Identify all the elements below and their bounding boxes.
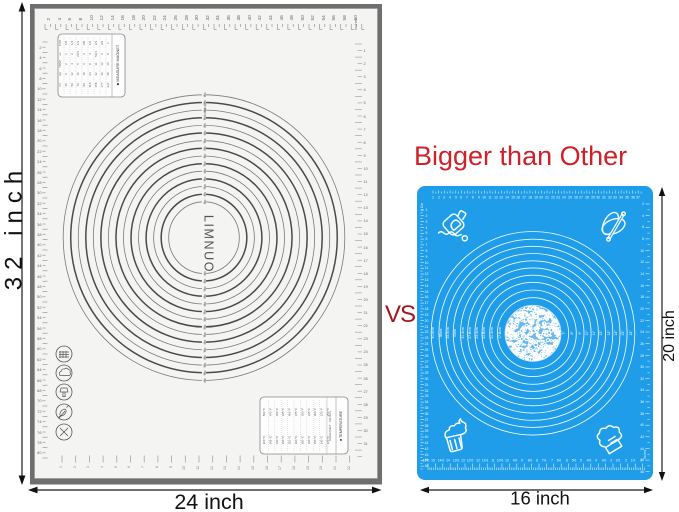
svg-text:TBSP: TBSP xyxy=(58,60,62,68)
svg-text:19: 19 xyxy=(364,285,368,289)
svg-text:15: 15 xyxy=(251,466,255,470)
svg-text:1½: 1½ xyxy=(631,459,636,463)
svg-text:12: 12 xyxy=(494,196,498,200)
svg-text:18: 18 xyxy=(640,295,644,299)
svg-text:20: 20 xyxy=(364,298,368,302)
svg-text:3Bcm: 3Bcm xyxy=(439,328,443,337)
svg-text:2: 2 xyxy=(364,62,366,66)
svg-text:9: 9 xyxy=(478,196,480,200)
svg-text:5: 5 xyxy=(580,459,582,463)
svg-text:59: 59 xyxy=(70,83,74,87)
svg-text:46: 46 xyxy=(279,15,285,21)
svg-text:9: 9 xyxy=(364,154,366,158)
svg-text:42: 42 xyxy=(37,253,41,258)
svg-text:34: 34 xyxy=(619,196,623,200)
svg-text:32: 32 xyxy=(608,196,612,200)
svg-text:22.Bcm: 22.Bcm xyxy=(482,327,486,339)
svg-text:22: 22 xyxy=(425,330,429,334)
svg-text:10: 10 xyxy=(182,466,186,470)
svg-text:25: 25 xyxy=(568,196,572,200)
svg-text:11: 11 xyxy=(488,196,492,200)
svg-text:13: 13 xyxy=(461,459,465,463)
svg-text:6: 6 xyxy=(642,225,644,229)
svg-text:2: 2 xyxy=(426,214,428,218)
svg-text:● Cm: ● Cm xyxy=(420,203,424,211)
svg-text:11: 11 xyxy=(364,180,368,184)
svg-text:14: 14 xyxy=(425,284,429,288)
svg-text:260 °C: 260 °C xyxy=(262,436,266,445)
svg-text:10": 10" xyxy=(585,330,589,336)
svg-text:20: 20 xyxy=(425,319,429,323)
svg-text:8: 8 xyxy=(78,18,84,21)
svg-text:8: 8 xyxy=(642,237,644,241)
svg-text:Inches: Inches xyxy=(353,18,358,30)
svg-text:31: 31 xyxy=(602,196,606,200)
svg-text:30: 30 xyxy=(64,83,68,87)
svg-text:12: 12 xyxy=(425,272,429,276)
svg-text:15: 15 xyxy=(511,196,515,200)
svg-text:24: 24 xyxy=(364,350,368,354)
svg-text:13: 13 xyxy=(364,206,368,210)
svg-text:58: 58 xyxy=(37,336,41,341)
svg-text:34: 34 xyxy=(640,388,644,392)
svg-text:56: 56 xyxy=(331,15,337,21)
svg-text:20.3cm: 20.3cm xyxy=(490,327,494,338)
svg-text:79: 79 xyxy=(76,83,80,87)
svg-text:31: 31 xyxy=(364,442,368,446)
svg-text:13: 13 xyxy=(223,466,227,470)
svg-text:10: 10 xyxy=(89,15,95,21)
svg-text:66: 66 xyxy=(37,378,41,383)
svg-text:15": 15" xyxy=(621,330,625,336)
svg-text:30: 30 xyxy=(194,15,200,21)
svg-text:12: 12 xyxy=(364,193,368,197)
svg-text:24: 24 xyxy=(88,72,92,76)
svg-text:40.6cm: 40.6cm xyxy=(431,327,435,338)
svg-text:17: 17 xyxy=(278,466,282,470)
svg-text:14: 14 xyxy=(110,15,116,21)
svg-text:46: 46 xyxy=(37,274,41,279)
svg-text:4: 4 xyxy=(364,88,366,92)
svg-text:ml: ml xyxy=(58,83,62,86)
svg-text:38: 38 xyxy=(640,412,644,416)
svg-text:20: 20 xyxy=(319,466,323,470)
svg-text:28: 28 xyxy=(640,354,644,358)
svg-text:2: 2 xyxy=(438,196,440,200)
svg-text:32: 32 xyxy=(94,72,98,76)
svg-text:8: 8 xyxy=(426,249,428,253)
svg-text:250 °F: 250 °F xyxy=(326,408,330,417)
svg-text:7: 7 xyxy=(466,196,468,200)
svg-text:12½: 12½ xyxy=(467,459,474,463)
svg-text:140 °C: 140 °C xyxy=(320,436,324,445)
svg-text:425 °F: 425 °F xyxy=(281,408,285,417)
svg-text:42: 42 xyxy=(257,15,263,21)
svg-text:19: 19 xyxy=(425,313,429,317)
svg-text:14: 14 xyxy=(640,272,644,276)
svg-text:8: 8 xyxy=(536,459,538,463)
svg-text:16: 16 xyxy=(265,466,269,470)
svg-text:26: 26 xyxy=(364,377,368,381)
svg-text:12: 12 xyxy=(476,459,480,463)
svg-text:52: 52 xyxy=(37,305,41,310)
svg-text:177: 177 xyxy=(100,82,104,87)
svg-text:16: 16 xyxy=(120,15,126,21)
svg-text:27: 27 xyxy=(364,390,368,394)
svg-text:25: 25 xyxy=(364,363,368,367)
svg-text:12: 12 xyxy=(100,62,104,66)
svg-text:12: 12 xyxy=(99,15,105,21)
svg-text:21: 21 xyxy=(333,466,337,470)
svg-text:30: 30 xyxy=(364,429,368,433)
svg-text:6: 6 xyxy=(127,466,131,468)
svg-text:43: 43 xyxy=(425,453,429,457)
svg-text:2/3: 2/3 xyxy=(94,41,98,46)
svg-text:1/2: 1/2 xyxy=(88,41,92,46)
svg-text:12: 12 xyxy=(210,466,214,470)
svg-text:28: 28 xyxy=(184,15,190,21)
svg-text:50: 50 xyxy=(300,15,306,21)
svg-text:22: 22 xyxy=(37,149,41,154)
svg-text:12": 12" xyxy=(599,330,603,336)
svg-text:1: 1 xyxy=(426,208,428,212)
svg-text:33: 33 xyxy=(425,394,429,398)
svg-text:3½: 3½ xyxy=(602,459,607,463)
svg-text:237: 237 xyxy=(106,82,110,87)
svg-text:10½: 10½ xyxy=(497,459,504,463)
svg-text:37: 37 xyxy=(425,418,429,422)
svg-text:350 °F: 350 °F xyxy=(300,408,304,417)
svg-text:2: 2 xyxy=(73,466,77,468)
svg-text:20 inch: 20 inch xyxy=(661,310,678,362)
svg-text:21: 21 xyxy=(545,196,549,200)
svg-text:24: 24 xyxy=(562,196,566,200)
svg-text:22: 22 xyxy=(640,319,644,323)
svg-text:17.Bcm: 17.Bcm xyxy=(498,327,502,339)
svg-text:16: 16 xyxy=(106,62,110,66)
svg-text:16: 16 xyxy=(640,284,644,288)
svg-text:30.4cm: 30.4cm xyxy=(461,327,465,338)
svg-text:29: 29 xyxy=(425,371,429,375)
svg-text:8: 8 xyxy=(155,466,159,468)
svg-text:42: 42 xyxy=(425,447,429,451)
svg-text:6: 6 xyxy=(460,196,462,200)
svg-text:16: 16 xyxy=(76,72,80,76)
svg-text:11: 11 xyxy=(425,266,429,270)
svg-text:33cm: 33cm xyxy=(453,329,457,337)
svg-text:48: 48 xyxy=(640,470,644,474)
svg-text:89: 89 xyxy=(82,83,86,87)
svg-text:13": 13" xyxy=(607,330,611,336)
svg-text:36: 36 xyxy=(37,222,41,227)
svg-text:3/8: 3/8 xyxy=(82,41,86,46)
svg-text:325 °F: 325 °F xyxy=(307,408,311,417)
svg-text:118: 118 xyxy=(88,82,92,87)
svg-text:23: 23 xyxy=(425,336,429,340)
svg-text:8: 8 xyxy=(472,196,474,200)
svg-text:30: 30 xyxy=(425,377,429,381)
svg-text:41: 41 xyxy=(425,441,429,445)
svg-text:15: 15 xyxy=(364,232,368,236)
svg-text:500 °F: 500 °F xyxy=(262,408,266,417)
svg-text:14: 14 xyxy=(364,219,368,223)
svg-text:8½: 8½ xyxy=(528,459,533,463)
svg-text:16: 16 xyxy=(425,295,429,299)
svg-text:tsp: tsp xyxy=(58,72,62,76)
svg-text:56: 56 xyxy=(37,326,41,331)
svg-text:26: 26 xyxy=(173,15,179,21)
svg-text:Bigger than Other: Bigger than Other xyxy=(414,141,627,171)
svg-text:23: 23 xyxy=(364,337,368,341)
svg-text:158: 158 xyxy=(94,82,98,87)
svg-text:34: 34 xyxy=(215,15,221,21)
svg-text:4: 4 xyxy=(449,196,451,200)
svg-text:48: 48 xyxy=(37,284,41,289)
svg-text:Inches: Inches xyxy=(643,449,647,459)
svg-text:14": 14" xyxy=(614,330,618,336)
svg-text:18: 18 xyxy=(292,466,296,470)
svg-text:15: 15 xyxy=(431,459,435,463)
svg-text:24 inch: 24 inch xyxy=(174,490,243,512)
svg-text:1/4: 1/4 xyxy=(70,41,74,46)
svg-text:14½: 14½ xyxy=(438,459,445,463)
svg-text:58: 58 xyxy=(342,15,348,21)
svg-text:22: 22 xyxy=(364,324,368,328)
svg-text:38: 38 xyxy=(37,232,41,237)
svg-text:1/3: 1/3 xyxy=(76,41,80,46)
svg-text:12: 12 xyxy=(70,72,74,76)
svg-text:oz: oz xyxy=(58,52,62,56)
svg-text:28: 28 xyxy=(585,196,589,200)
svg-text:■ TEMPERATURE: ■ TEMPERATURE xyxy=(339,410,343,441)
svg-text:400 °F: 400 °F xyxy=(288,408,292,417)
svg-text:3: 3 xyxy=(426,220,428,224)
svg-text:4: 4 xyxy=(426,226,428,230)
svg-text:38: 38 xyxy=(236,15,242,21)
svg-text:10: 10 xyxy=(640,249,644,253)
svg-text:VS: VS xyxy=(385,301,415,328)
svg-text:9: 9 xyxy=(521,459,523,463)
svg-text:51/3: 51/3 xyxy=(94,51,98,57)
svg-text:18: 18 xyxy=(131,15,137,21)
svg-text:5: 5 xyxy=(364,101,366,105)
svg-text:13½: 13½ xyxy=(453,459,460,463)
svg-text:2: 2 xyxy=(642,202,644,206)
svg-text:28: 28 xyxy=(425,365,429,369)
svg-text:76: 76 xyxy=(37,430,41,435)
svg-text:26: 26 xyxy=(37,170,41,175)
svg-text:2: 2 xyxy=(625,459,627,463)
svg-text:18: 18 xyxy=(82,72,86,76)
svg-text:13: 13 xyxy=(425,278,429,282)
svg-text:5½: 5½ xyxy=(572,459,577,463)
svg-text:2: 2 xyxy=(46,18,52,21)
svg-text:11: 11 xyxy=(94,62,98,65)
svg-text:40: 40 xyxy=(247,15,253,21)
svg-text:450 °F: 450 °F xyxy=(275,408,279,417)
svg-text:4: 4 xyxy=(100,466,104,468)
svg-text:4: 4 xyxy=(595,459,597,463)
svg-text:1: 1 xyxy=(59,466,63,468)
svg-text:19: 19 xyxy=(306,466,310,470)
svg-text:6: 6 xyxy=(364,115,366,119)
svg-text:17: 17 xyxy=(364,259,368,263)
svg-text:1: 1 xyxy=(432,196,434,200)
svg-text:14: 14 xyxy=(446,459,450,463)
svg-text:30: 30 xyxy=(596,196,600,200)
svg-text:16: 16 xyxy=(516,196,520,200)
svg-text:230 °C: 230 °C xyxy=(275,436,279,445)
svg-text:44: 44 xyxy=(268,15,274,21)
svg-text:24: 24 xyxy=(640,330,644,334)
svg-text:CUP: CUP xyxy=(58,40,62,46)
svg-text:72: 72 xyxy=(37,409,41,414)
svg-text:12: 12 xyxy=(37,97,41,102)
svg-text:3/4: 3/4 xyxy=(100,41,104,46)
svg-text:48: 48 xyxy=(289,15,295,21)
svg-text:4: 4 xyxy=(642,214,644,218)
svg-text:36: 36 xyxy=(100,72,104,76)
svg-text:34: 34 xyxy=(425,400,429,404)
svg-text:68: 68 xyxy=(37,388,41,393)
svg-text:32 inch: 32 inch xyxy=(1,164,28,290)
svg-text:7½: 7½ xyxy=(542,459,547,463)
svg-text:4½: 4½ xyxy=(587,459,592,463)
svg-text:32: 32 xyxy=(205,15,211,21)
svg-text:35.5cm: 35.5cm xyxy=(446,327,450,338)
svg-text:6: 6 xyxy=(67,18,73,21)
svg-text:9½: 9½ xyxy=(513,459,518,463)
svg-text:20: 20 xyxy=(141,15,147,21)
svg-text:7: 7 xyxy=(551,459,553,463)
svg-text:40: 40 xyxy=(425,435,429,439)
svg-text:16: 16 xyxy=(37,118,41,123)
svg-text:29: 29 xyxy=(364,416,368,420)
svg-text:11: 11 xyxy=(491,459,495,463)
svg-text:3: 3 xyxy=(443,196,445,200)
svg-text:31: 31 xyxy=(425,383,429,387)
svg-text:5: 5 xyxy=(455,196,457,200)
svg-text:27.Bcm: 27.Bcm xyxy=(468,327,472,339)
svg-text:23: 23 xyxy=(556,196,560,200)
svg-text:27: 27 xyxy=(579,196,583,200)
svg-text:12: 12 xyxy=(640,260,644,264)
svg-text:28: 28 xyxy=(364,403,368,407)
svg-text:42: 42 xyxy=(640,435,644,439)
svg-text:62: 62 xyxy=(37,357,41,362)
svg-text:9: 9 xyxy=(426,255,428,259)
svg-text:19: 19 xyxy=(534,196,538,200)
svg-text:11½: 11½ xyxy=(482,459,488,463)
svg-text:21: 21 xyxy=(364,311,368,315)
svg-text:52: 52 xyxy=(310,15,316,21)
svg-text:22: 22 xyxy=(347,466,351,470)
svg-text:2½: 2½ xyxy=(616,459,621,463)
svg-text:37: 37 xyxy=(636,196,640,200)
svg-text:36: 36 xyxy=(226,15,232,21)
svg-text:11: 11 xyxy=(196,466,200,470)
svg-text:7: 7 xyxy=(141,466,145,468)
svg-text:22/3: 22/3 xyxy=(76,51,80,57)
svg-text:20: 20 xyxy=(640,307,644,311)
svg-text:2: 2 xyxy=(39,45,41,50)
svg-text:39: 39 xyxy=(425,429,429,433)
svg-text:22: 22 xyxy=(152,15,158,21)
svg-text:■ MEASURE MAGNET: ■ MEASURE MAGNET xyxy=(115,44,120,85)
svg-text:3: 3 xyxy=(364,75,366,79)
svg-text:30: 30 xyxy=(640,365,644,369)
svg-text:25: 25 xyxy=(425,348,429,352)
svg-text:375 °F: 375 °F xyxy=(294,408,298,417)
svg-text:120 °C: 120 °C xyxy=(326,436,330,445)
svg-text:21: 21 xyxy=(425,325,429,329)
svg-text:(Inches): (Inches) xyxy=(203,103,207,115)
svg-text:14: 14 xyxy=(237,466,241,470)
svg-text:24: 24 xyxy=(162,15,168,21)
svg-text:180 °C: 180 °C xyxy=(300,436,304,445)
svg-text:17: 17 xyxy=(522,196,526,200)
svg-text:6: 6 xyxy=(566,459,568,463)
svg-text:36: 36 xyxy=(425,412,429,416)
svg-text:7: 7 xyxy=(364,128,366,132)
svg-text:16 inch: 16 inch xyxy=(510,488,570,509)
svg-text:3: 3 xyxy=(86,466,90,468)
svg-text:35: 35 xyxy=(425,406,429,410)
svg-text:32: 32 xyxy=(425,389,429,393)
svg-text:22: 22 xyxy=(551,196,555,200)
svg-text:33: 33 xyxy=(613,196,617,200)
svg-text:LIMNUO: LIMNUO xyxy=(202,215,216,273)
svg-text:44: 44 xyxy=(425,458,429,462)
svg-text:10: 10 xyxy=(505,459,509,463)
svg-text:5: 5 xyxy=(114,466,118,468)
svg-text:27: 27 xyxy=(425,360,429,364)
svg-text:36: 36 xyxy=(631,196,635,200)
svg-text:54: 54 xyxy=(321,15,327,21)
svg-text:9: 9 xyxy=(169,466,173,468)
svg-text:6: 6 xyxy=(39,66,41,71)
svg-text:4: 4 xyxy=(57,18,63,21)
svg-text:16": 16" xyxy=(629,330,633,336)
svg-text:20: 20 xyxy=(539,196,543,200)
svg-text:28: 28 xyxy=(37,180,41,185)
svg-text:78: 78 xyxy=(37,440,41,445)
svg-text:16: 16 xyxy=(364,246,368,250)
svg-text:220 °C: 220 °C xyxy=(281,436,285,445)
svg-text:200 °C: 200 °C xyxy=(288,436,292,445)
svg-text:1/8: 1/8 xyxy=(64,41,68,46)
svg-text:18: 18 xyxy=(364,272,368,276)
svg-text:32: 32 xyxy=(640,377,644,381)
svg-text:18: 18 xyxy=(425,307,429,311)
svg-text:26: 26 xyxy=(574,196,578,200)
svg-text:36: 36 xyxy=(640,400,644,404)
svg-text:40: 40 xyxy=(640,423,644,427)
svg-text:18: 18 xyxy=(528,196,532,200)
svg-text:24: 24 xyxy=(425,342,429,346)
svg-text:18: 18 xyxy=(37,128,41,133)
svg-text:10: 10 xyxy=(364,167,368,171)
svg-text:160 °C: 160 °C xyxy=(307,436,311,445)
svg-text:6½: 6½ xyxy=(557,459,562,463)
svg-text:245 °C: 245 °C xyxy=(268,436,272,445)
svg-text:275 °F: 275 °F xyxy=(320,408,324,417)
svg-text:6: 6 xyxy=(426,237,428,241)
svg-text:35: 35 xyxy=(625,196,629,200)
svg-text:26: 26 xyxy=(425,354,429,358)
svg-text:8: 8 xyxy=(39,76,41,81)
svg-text:45: 45 xyxy=(425,464,429,468)
